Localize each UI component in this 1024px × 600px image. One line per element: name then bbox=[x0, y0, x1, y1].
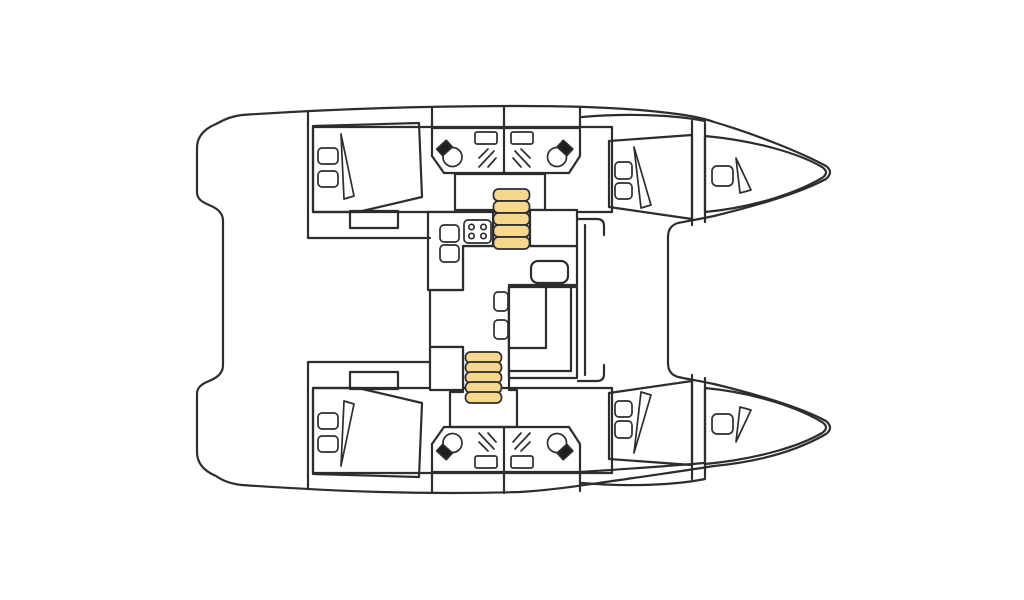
nav-seat bbox=[531, 261, 568, 283]
sink-icon bbox=[511, 456, 533, 468]
burner-icon bbox=[469, 233, 474, 238]
sink-icon bbox=[440, 245, 459, 262]
pillow-icon bbox=[615, 401, 632, 417]
burner-icon bbox=[481, 224, 486, 229]
pillow-icon bbox=[318, 436, 338, 452]
stair-step bbox=[494, 201, 530, 213]
dinette-seat bbox=[494, 292, 508, 311]
sink-icon bbox=[475, 132, 497, 144]
dinette-table-inner bbox=[509, 287, 546, 348]
sink-icon bbox=[511, 132, 533, 144]
pillow-icon bbox=[318, 148, 338, 164]
burner-icon bbox=[481, 233, 486, 238]
stair-step bbox=[494, 237, 530, 249]
pillow-icon bbox=[318, 171, 338, 187]
stairs-starboard: Companionway steps to starboard hull bbox=[466, 352, 502, 403]
pillow-icon bbox=[712, 414, 733, 434]
stair-step bbox=[494, 213, 530, 225]
dinette-seat bbox=[494, 320, 508, 339]
pillow-icon bbox=[712, 166, 733, 186]
saloon-cabinet bbox=[530, 210, 577, 246]
deck-plan-svg: catamaran-interior-deck-plan Port hull P… bbox=[0, 0, 1024, 600]
stair-step bbox=[494, 189, 530, 201]
stair-step bbox=[466, 392, 502, 403]
galley-counter-aft bbox=[430, 347, 463, 390]
pillow-icon bbox=[318, 413, 338, 429]
stairs-port: Companionway steps to port hull bbox=[494, 189, 530, 249]
sink-icon bbox=[440, 225, 459, 242]
catamaran-deck-plan: catamaran-interior-deck-plan Port hull P… bbox=[0, 0, 1024, 600]
stair-step bbox=[494, 225, 530, 237]
stove-icon bbox=[464, 220, 491, 243]
burner-icon bbox=[469, 224, 474, 229]
pillow-icon bbox=[615, 162, 632, 179]
sink-icon bbox=[475, 456, 497, 468]
pillow-icon bbox=[615, 421, 632, 438]
pillow-icon bbox=[615, 183, 632, 199]
